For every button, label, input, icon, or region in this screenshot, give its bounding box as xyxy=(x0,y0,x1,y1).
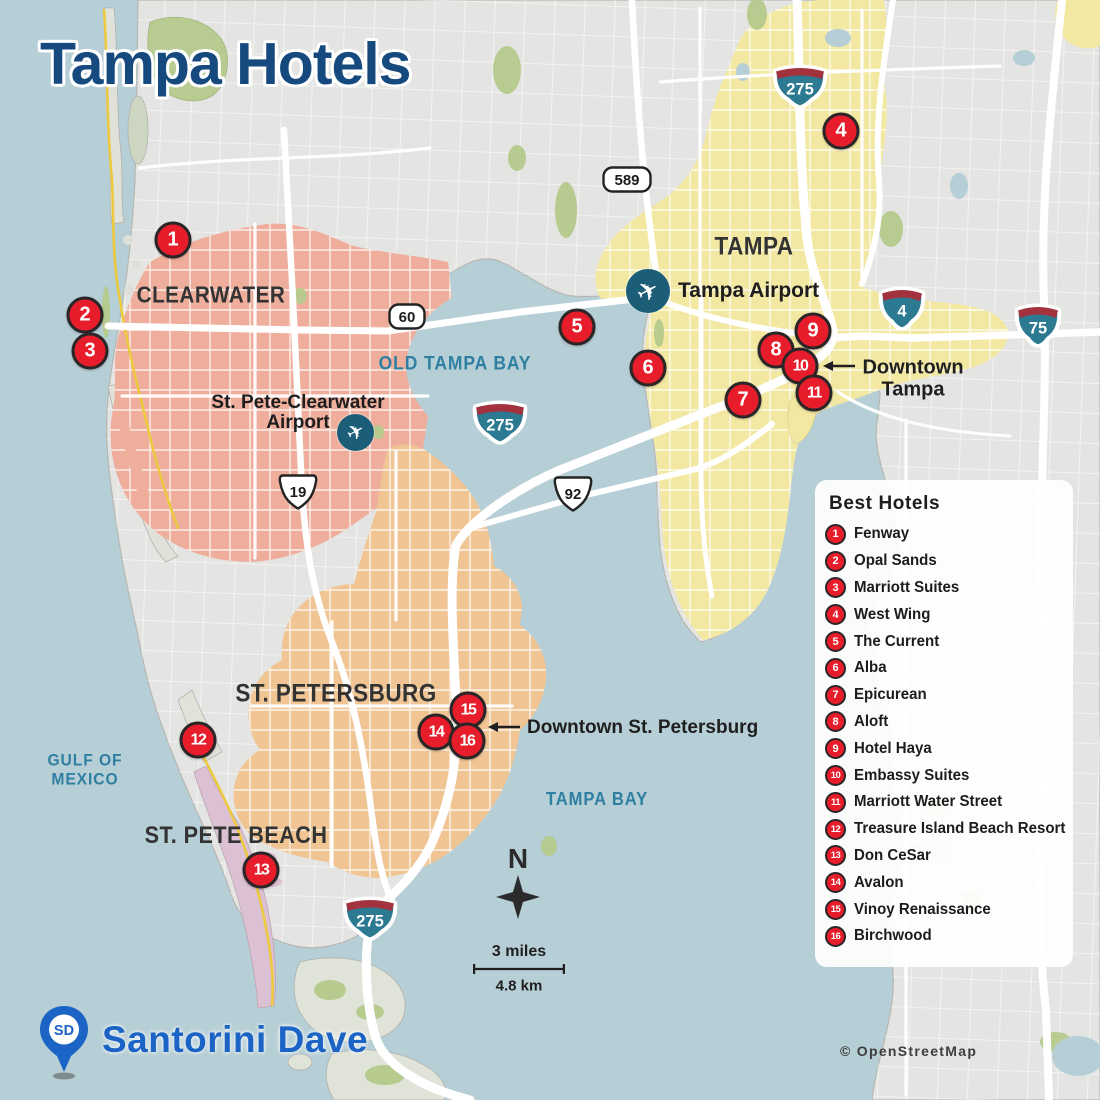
legend-label-5: The Current xyxy=(854,633,939,651)
legend-label-2: Opal Sands xyxy=(854,552,937,570)
water-label-old-tampa-bay: OLD TAMPA BAY xyxy=(379,355,532,376)
map-marker-4: 4 xyxy=(823,113,860,150)
downtown-tampa-arrow-icon xyxy=(822,359,856,373)
water-label-gulf-of: GULF OFMEXICO xyxy=(47,751,122,788)
legend-badge-2: 2 xyxy=(825,551,846,572)
legend-badge-8: 8 xyxy=(825,711,846,732)
svg-text:275: 275 xyxy=(786,81,814,99)
legend-item-7: 7Epicurean xyxy=(815,682,1073,709)
legend-badge-15: 15 xyxy=(825,899,846,920)
legend-badge-1: 1 xyxy=(825,524,846,545)
brand-pin-icon: SD xyxy=(36,1003,92,1083)
legend-badge-10: 10 xyxy=(825,765,846,786)
interstate-shield-275: 275 xyxy=(772,63,828,114)
svg-text:75: 75 xyxy=(1029,320,1047,338)
legend-badge-14: 14 xyxy=(825,872,846,893)
attribution: © OpenStreetMap xyxy=(840,1043,977,1059)
legend-item-1: 1Fenway xyxy=(815,521,1073,548)
map-marker-7: 7 xyxy=(725,382,762,419)
legend-panel: Best Hotels 1Fenway2Opal Sands3Marriott … xyxy=(815,480,1073,967)
compass-north-label: N xyxy=(508,843,528,875)
scale-bar xyxy=(473,962,565,976)
map-marker-2: 2 xyxy=(67,297,104,334)
legend-item-13: 13Don CeSar xyxy=(815,843,1073,870)
legend-label-9: Hotel Haya xyxy=(854,740,932,758)
legend-label-11: Marriott Water Street xyxy=(854,793,1002,811)
legend-label-7: Epicurean xyxy=(854,686,927,704)
map-marker-3: 3 xyxy=(72,333,109,370)
map-marker-13: 13 xyxy=(243,852,280,889)
legend-label-16: Birchwood xyxy=(854,927,932,945)
legend-badge-6: 6 xyxy=(825,658,846,679)
legend-badge-5: 5 xyxy=(825,631,846,652)
legend-item-10: 10Embassy Suites xyxy=(815,762,1073,789)
legend-badge-12: 12 xyxy=(825,819,846,840)
interstate-shield-275: 275 xyxy=(342,895,398,946)
svg-text:60: 60 xyxy=(399,309,416,326)
svg-text:589: 589 xyxy=(614,172,639,189)
legend-item-2: 2Opal Sands xyxy=(815,548,1073,575)
stpc-airport-line1: St. Pete-Clearwater xyxy=(211,393,384,413)
downtown-stpete-annotation: Downtown St. Petersburg xyxy=(527,717,758,739)
legend-item-12: 12Treasure Island Beach Resort xyxy=(815,816,1073,843)
map-marker-12: 12 xyxy=(180,722,217,759)
map-marker-16: 16 xyxy=(449,723,486,760)
interstate-shield-4: 4 xyxy=(878,285,926,336)
city-label-tampa: TAMPA xyxy=(715,233,794,262)
legend-item-5: 5The Current xyxy=(815,628,1073,655)
page-title: Tampa Hotels xyxy=(40,30,411,98)
interstate-shield-75: 75 xyxy=(1014,302,1062,353)
legend-label-12: Treasure Island Beach Resort xyxy=(854,820,1065,838)
state-shield-589: 589 xyxy=(602,166,652,199)
legend-badge-16: 16 xyxy=(825,926,846,947)
city-label-st-petersburg: ST. PETERSBURG xyxy=(235,680,436,709)
legend-label-8: Aloft xyxy=(854,713,888,731)
downtown-tampa-annotation: Downtown Tampa xyxy=(862,357,963,400)
legend-label-6: Alba xyxy=(854,659,887,677)
scale-miles-label: 3 miles xyxy=(492,943,546,961)
legend-item-16: 16Birchwood xyxy=(815,923,1073,950)
city-label-clearwater: CLEARWATER xyxy=(137,282,286,309)
map-marker-1: 1 xyxy=(155,222,192,259)
svg-text:19: 19 xyxy=(290,484,307,501)
legend-label-15: Vinoy Renaissance xyxy=(854,901,991,919)
brand-initials: SD xyxy=(54,1023,74,1039)
state-shield-60: 60 xyxy=(388,303,426,336)
interstate-shield-275: 275 xyxy=(472,399,528,450)
legend-item-4: 4West Wing xyxy=(815,601,1073,628)
us-shield-19: 19 xyxy=(277,472,319,517)
svg-text:275: 275 xyxy=(356,913,384,931)
scale-km-label: 4.8 km xyxy=(496,978,543,995)
map-marker-11: 11 xyxy=(796,375,833,412)
legend-item-8: 8Aloft xyxy=(815,709,1073,736)
map-marker-9: 9 xyxy=(795,313,832,350)
stpete-clearwater-airport-icon: ✈ xyxy=(337,414,374,451)
svg-text:92: 92 xyxy=(565,486,582,503)
legend-item-14: 14Avalon xyxy=(815,869,1073,896)
legend-label-1: Fenway xyxy=(854,525,909,543)
tampa-airport-label: Tampa Airport xyxy=(678,279,819,303)
legend-title: Best Hotels xyxy=(829,493,940,515)
legend-badge-11: 11 xyxy=(825,792,846,813)
map-marker-5: 5 xyxy=(559,309,596,346)
us-shield-92: 92 xyxy=(552,474,594,519)
legend-item-15: 15Vinoy Renaissance xyxy=(815,896,1073,923)
legend-item-6: 6Alba xyxy=(815,655,1073,682)
legend-label-3: Marriott Suites xyxy=(854,579,959,597)
legend-label-10: Embassy Suites xyxy=(854,767,969,785)
legend-badge-4: 4 xyxy=(825,604,846,625)
tampa-airport-icon: ✈ xyxy=(626,269,670,313)
downtown-tampa-line2: Tampa xyxy=(862,379,963,401)
legend-badge-3: 3 xyxy=(825,577,846,598)
compass-star-icon xyxy=(496,875,540,919)
legend-items: 1Fenway2Opal Sands3Marriott Suites4West … xyxy=(815,521,1073,950)
legend-badge-9: 9 xyxy=(825,738,846,759)
svg-text:4: 4 xyxy=(897,303,907,321)
legend-label-13: Don CeSar xyxy=(854,847,931,865)
downtown-stpete-arrow-icon xyxy=(487,720,521,734)
brand-logo: SD Santorini Dave xyxy=(36,1003,368,1083)
city-label-st-pete-beach: ST. PETE BEACH xyxy=(145,822,328,850)
downtown-tampa-line1: Downtown xyxy=(862,357,963,379)
water-label-tampa-bay: TAMPA BAY xyxy=(546,790,648,810)
legend-item-3: 3Marriott Suites xyxy=(815,575,1073,602)
legend-badge-7: 7 xyxy=(825,685,846,706)
tampa-hotels-map: CLEARWATERTAMPAST. PETERSBURGST. PETE BE… xyxy=(0,0,1100,1100)
legend-label-4: West Wing xyxy=(854,606,930,624)
legend-badge-13: 13 xyxy=(825,845,846,866)
map-marker-6: 6 xyxy=(630,350,667,387)
brand-name: Santorini Dave xyxy=(102,1019,368,1061)
legend-item-9: 9Hotel Haya xyxy=(815,735,1073,762)
legend-item-11: 11Marriott Water Street xyxy=(815,789,1073,816)
legend-label-14: Avalon xyxy=(854,874,904,892)
svg-text:275: 275 xyxy=(486,417,514,435)
